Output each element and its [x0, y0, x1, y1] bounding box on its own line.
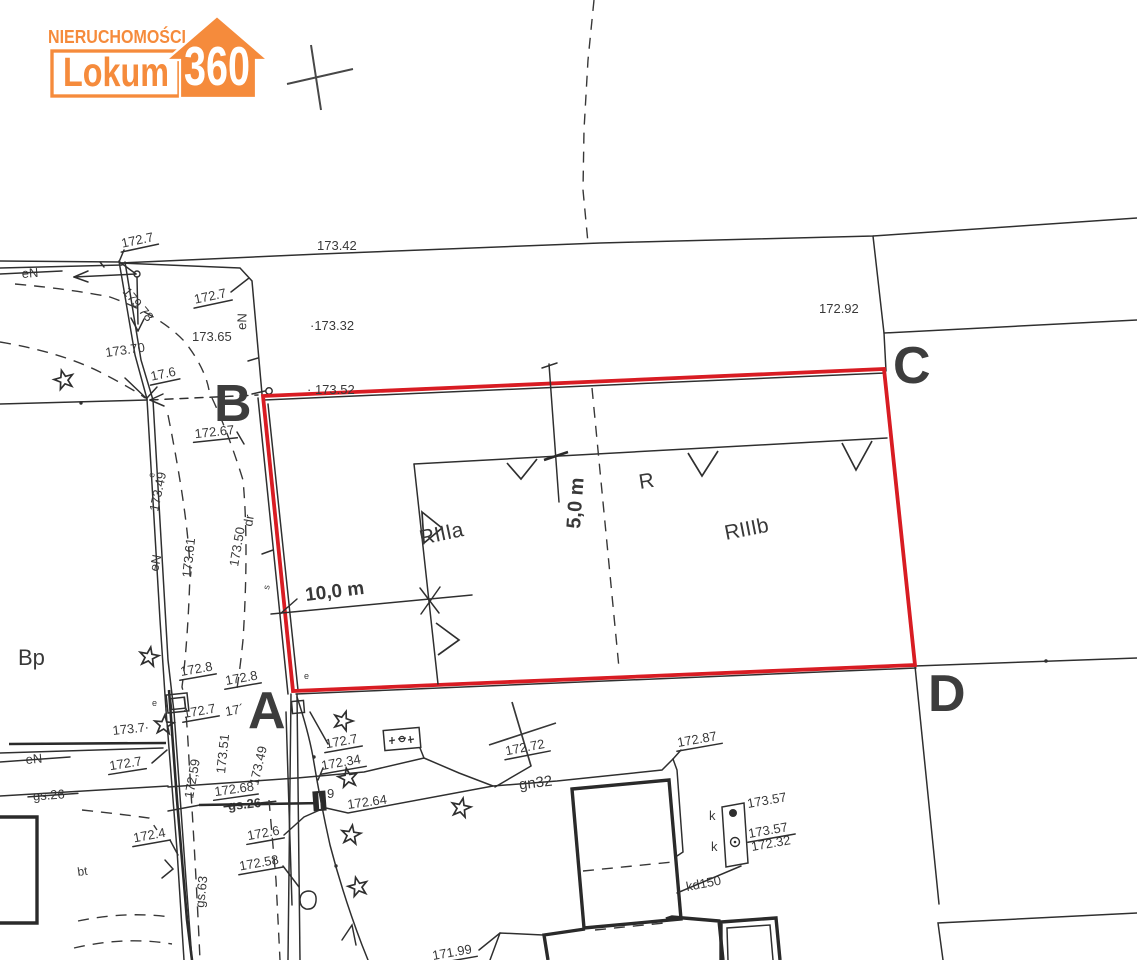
svg-text:eN: eN: [234, 313, 250, 330]
svg-text:·173.32: ·173.32: [310, 318, 354, 333]
svg-text:e: e: [152, 698, 157, 708]
svg-text:Bp: Bp: [18, 645, 45, 670]
svg-text:5,0 m: 5,0 m: [563, 477, 589, 530]
svg-text:173.42: 173.42: [317, 238, 357, 253]
svg-text:k: k: [709, 808, 716, 823]
svg-text:k: k: [711, 839, 718, 854]
svg-text:· 173.52: · 173.52: [307, 382, 355, 397]
svg-text:9: 9: [327, 786, 334, 801]
svg-text:D: D: [928, 665, 966, 723]
svg-text:173.65: 173.65: [192, 329, 232, 344]
svg-text:Lokum: Lokum: [63, 49, 169, 95]
svg-text:A: A: [248, 682, 286, 740]
svg-text:C: C: [893, 337, 931, 395]
svg-text:NIERUCHOMOŚCI: NIERUCHOMOŚCI: [48, 26, 186, 47]
svg-text:e: e: [304, 671, 309, 681]
svg-text:172.92: 172.92: [819, 301, 859, 316]
svg-text:360: 360: [184, 35, 250, 97]
